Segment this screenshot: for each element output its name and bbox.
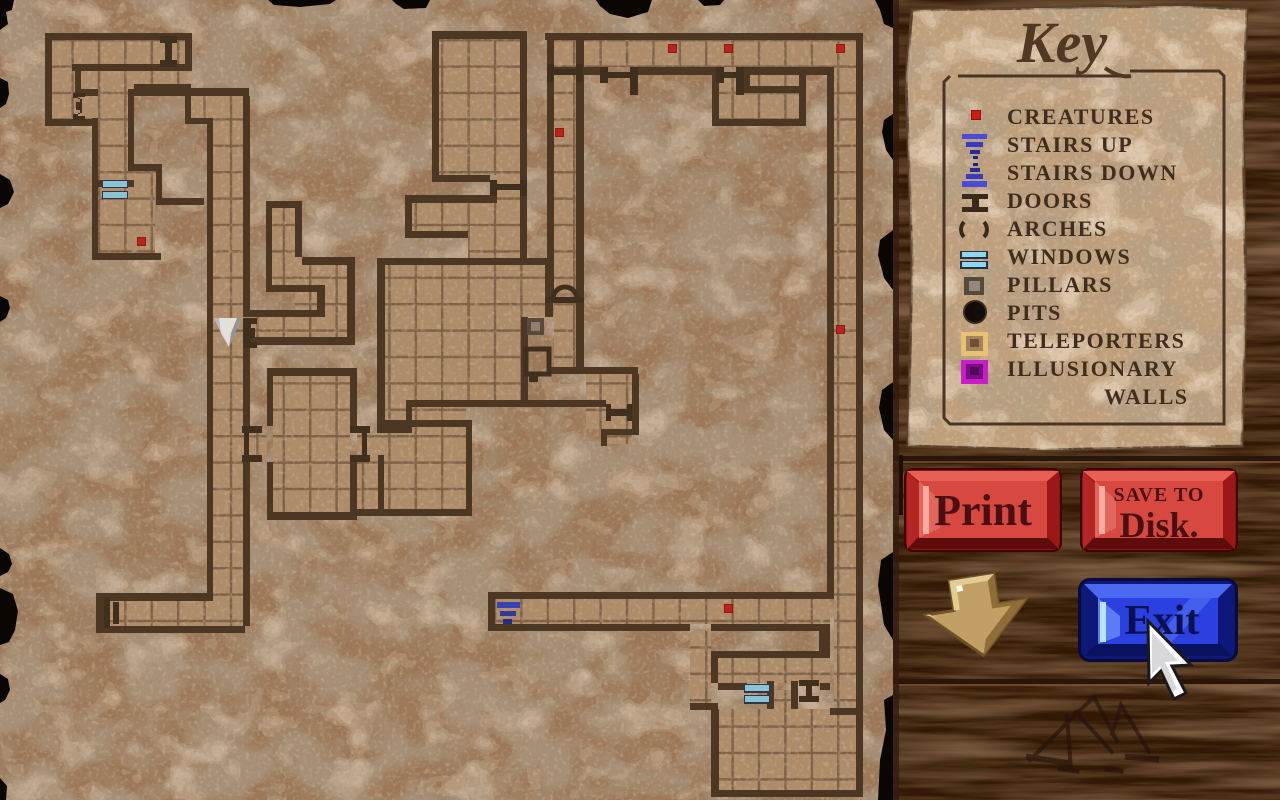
svg-text:WALLS: WALLS — [1104, 384, 1189, 409]
svg-text:CREATURES: CREATURES — [1007, 104, 1155, 129]
svg-text:TELEPORTERS: TELEPORTERS — [1007, 328, 1185, 353]
svg-text:DOORS: DOORS — [1007, 188, 1093, 213]
svg-text:Disk.: Disk. — [1119, 505, 1198, 545]
svg-text:PITS: PITS — [1007, 300, 1062, 325]
svg-text:Key: Key — [1016, 10, 1107, 75]
svg-text:ARCHES: ARCHES — [1007, 216, 1108, 241]
svg-text:Print: Print — [934, 486, 1032, 535]
svg-text:SAVE TO: SAVE TO — [1114, 484, 1205, 506]
svg-text:ILLUSIONARY: ILLUSIONARY — [1007, 356, 1178, 381]
svg-text:STAIRS UP: STAIRS UP — [1007, 132, 1133, 157]
svg-text:WINDOWS: WINDOWS — [1007, 244, 1131, 269]
svg-text:STAIRS DOWN: STAIRS DOWN — [1007, 160, 1178, 185]
svg-text:PILLARS: PILLARS — [1007, 272, 1113, 297]
